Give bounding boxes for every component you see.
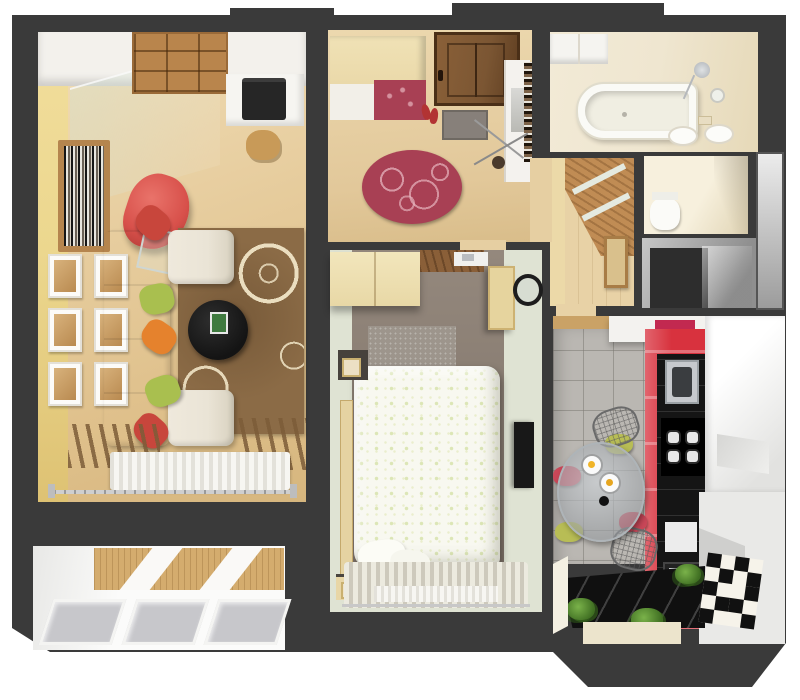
bay-sill-bottom (583, 622, 681, 644)
plate (583, 456, 601, 474)
room-corridor (550, 158, 634, 306)
apartment-floor-plan (0, 0, 800, 700)
bath-mirror (710, 88, 725, 103)
toilet (650, 198, 680, 230)
room-bedroom (330, 250, 542, 612)
room-bathroom (550, 32, 758, 152)
curtain-rod (54, 490, 294, 494)
console-books (524, 62, 532, 162)
tub-drain (622, 112, 627, 117)
bay-sill-left (553, 556, 568, 634)
open-door-leaf (756, 152, 784, 310)
double-bed (354, 366, 500, 568)
plant (567, 598, 595, 620)
storage-light-wedge (702, 246, 752, 308)
wood-gap (200, 548, 263, 590)
sofa-pillow (130, 201, 175, 246)
sink (668, 126, 698, 146)
table-item (599, 496, 609, 506)
room-storage (642, 238, 758, 308)
checker-cell (740, 614, 756, 630)
glazing-panel (121, 599, 209, 645)
corridor-wall (550, 158, 565, 306)
kitchen-sink (665, 360, 699, 404)
room-hallway (328, 30, 532, 242)
fried-egg (606, 479, 613, 486)
sofa-pillow (137, 281, 176, 317)
steel-item (462, 254, 474, 261)
sofa-pillow (136, 315, 181, 359)
bath-cabinet (550, 34, 608, 64)
burner (687, 451, 698, 462)
red-bench (374, 80, 426, 120)
sofa-pillow (142, 371, 184, 411)
towel (698, 116, 712, 125)
oval-red-rug (362, 150, 462, 224)
door-handle (438, 70, 443, 81)
living-radiator (110, 452, 290, 490)
pot (492, 156, 505, 169)
rod-cap-right (290, 484, 297, 498)
opening-hall-corridor (530, 158, 552, 242)
bed-side-rail (340, 400, 353, 586)
burner (687, 432, 698, 443)
burner (668, 451, 679, 462)
bedroom-radiator (374, 586, 498, 602)
bedroom-curtain-rod (342, 604, 530, 607)
room-wc (644, 156, 748, 234)
nightstand-lamp (338, 350, 368, 380)
glazing-panel (39, 599, 127, 645)
white-upper-cabinets (705, 316, 785, 492)
checker-decor (698, 552, 763, 629)
bedroom-cabinet (488, 266, 515, 330)
shower-head (694, 62, 710, 78)
balcony-glazing (46, 599, 284, 645)
burner (668, 432, 679, 443)
fried-egg (588, 461, 595, 468)
balcony-wood-strip (94, 548, 284, 590)
wall-tv (514, 422, 534, 488)
white-module (665, 522, 697, 552)
wood-gap (120, 548, 183, 590)
round-coffee-table (188, 300, 248, 360)
sink (704, 124, 734, 144)
room-kitchen (553, 316, 785, 646)
room-balcony (30, 543, 288, 653)
storage-dark-interior (650, 248, 708, 308)
rod-cap-left (48, 484, 55, 498)
glass-dining-table (557, 442, 645, 542)
kitchen-wood-wall (553, 316, 609, 329)
bedroom-wardrobe (330, 252, 420, 306)
room-living (38, 32, 306, 502)
plate (601, 474, 619, 492)
wc-shadow (714, 156, 748, 234)
plant (675, 564, 701, 584)
cooktop (661, 418, 705, 476)
glazing-panel (204, 599, 292, 645)
corridor-picture (604, 236, 628, 288)
round-mirror (513, 274, 543, 306)
